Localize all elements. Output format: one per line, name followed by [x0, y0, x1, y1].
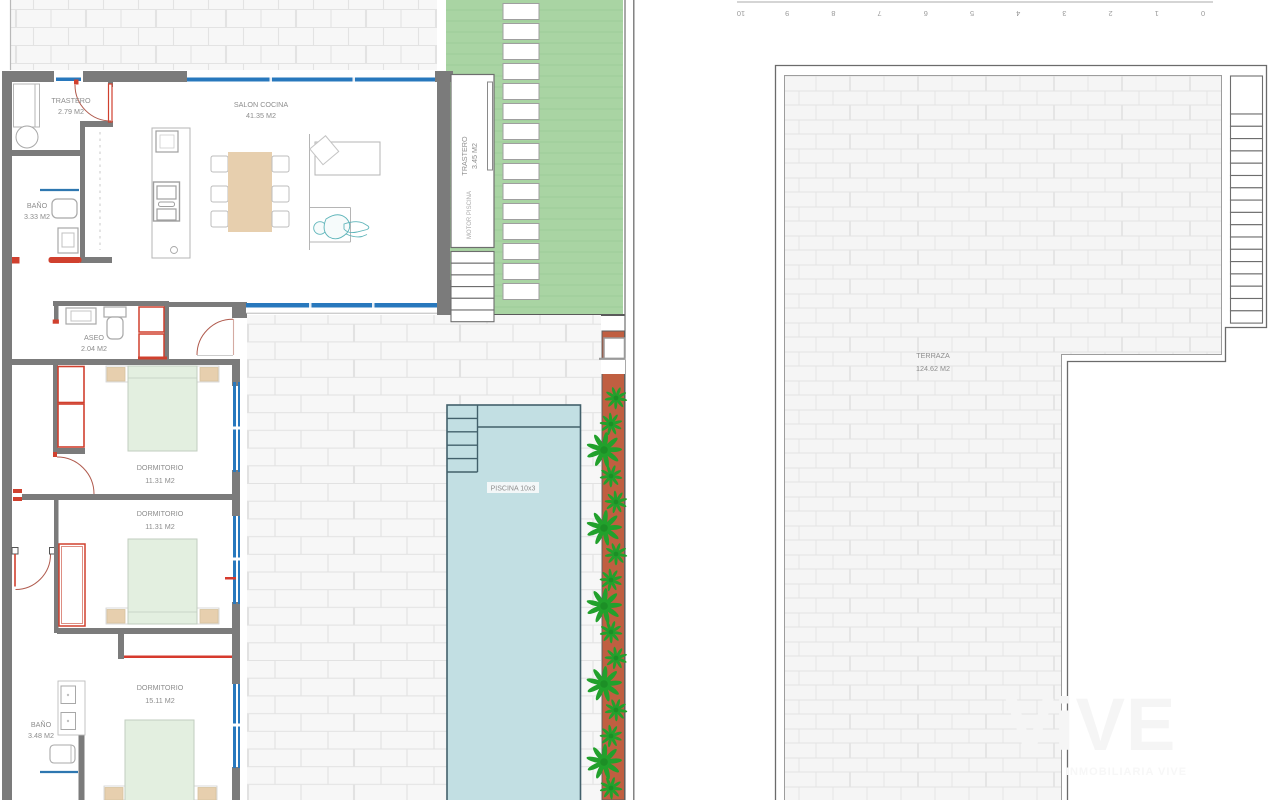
- svg-text:8: 8: [831, 9, 835, 18]
- svg-text:DORMITORIO: DORMITORIO: [137, 509, 184, 518]
- svg-text:1: 1: [1155, 9, 1159, 18]
- svg-text:TERRAZA: TERRAZA: [916, 351, 950, 360]
- svg-text:41.35 M2: 41.35 M2: [246, 111, 276, 120]
- svg-text:TRASTERO: TRASTERO: [460, 136, 469, 176]
- svg-text:DORMITORIO: DORMITORIO: [137, 463, 184, 472]
- svg-text:ASEO: ASEO: [84, 333, 104, 342]
- svg-text:2.04 M2: 2.04 M2: [81, 344, 107, 353]
- svg-text:10: 10: [737, 9, 745, 18]
- svg-text:2: 2: [1109, 9, 1113, 18]
- svg-text:ViVE: ViVE: [1005, 683, 1176, 766]
- svg-text:MOTOR PISCINA: MOTOR PISCINA: [467, 191, 473, 239]
- svg-text:11.31 M2: 11.31 M2: [145, 476, 174, 485]
- svg-text:SALON COCINA: SALON COCINA: [234, 100, 289, 109]
- svg-text:11.31 M2: 11.31 M2: [145, 522, 174, 531]
- svg-text:TRASTERO: TRASTERO: [51, 96, 91, 105]
- svg-text:15.11 M2: 15.11 M2: [145, 696, 174, 705]
- svg-text:7: 7: [878, 9, 882, 18]
- svg-text:3.33 M2: 3.33 M2: [24, 212, 50, 221]
- svg-text:DORMITORIO: DORMITORIO: [137, 683, 184, 692]
- svg-text:INMOBILIARIA VIVE: INMOBILIARIA VIVE: [1066, 766, 1187, 778]
- svg-text:BAÑO: BAÑO: [27, 201, 48, 210]
- svg-text:2.79 M2: 2.79 M2: [58, 107, 84, 116]
- svg-text:3: 3: [1062, 9, 1066, 18]
- svg-text:3.48 M2: 3.48 M2: [28, 731, 54, 740]
- svg-text:3.45 M2: 3.45 M2: [470, 143, 479, 169]
- svg-text:6: 6: [924, 9, 928, 18]
- svg-text:5: 5: [970, 9, 974, 18]
- svg-text:4: 4: [1016, 9, 1020, 18]
- svg-text:124.62 M2: 124.62 M2: [916, 364, 950, 373]
- svg-text:9: 9: [785, 9, 789, 18]
- svg-text:BAÑO: BAÑO: [31, 720, 52, 729]
- svg-text:PISCINA 10x3: PISCINA 10x3: [491, 486, 536, 493]
- svg-text:0: 0: [1201, 9, 1205, 18]
